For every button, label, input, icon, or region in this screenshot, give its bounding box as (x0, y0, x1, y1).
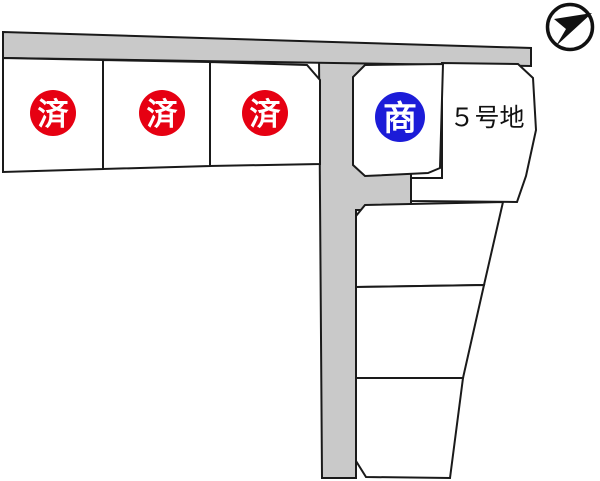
sold-badge-label: 済 (250, 97, 282, 133)
sold-badge-label: 済 (38, 97, 70, 133)
lot-5-label: ５号地 (449, 103, 524, 132)
lot-1-status-badge: 済 (30, 90, 76, 136)
lot-8-parcel[interactable] (356, 378, 463, 478)
lot-map-page: 済 済 済 商 ５号地 (0, 0, 600, 481)
lot-3-status-badge: 済 (242, 90, 288, 136)
lot-7-parcel[interactable] (356, 285, 484, 378)
north-arrow-icon (548, 5, 593, 50)
lot-map-svg: 済 済 済 商 ５号地 (0, 0, 600, 481)
negotiating-badge-label: 商 (383, 99, 417, 139)
lot-6-parcel[interactable] (356, 202, 503, 287)
lot-4-status-badge: 商 (375, 92, 425, 142)
lot-2-status-badge: 済 (139, 90, 185, 136)
sold-badge-label: 済 (147, 97, 179, 133)
